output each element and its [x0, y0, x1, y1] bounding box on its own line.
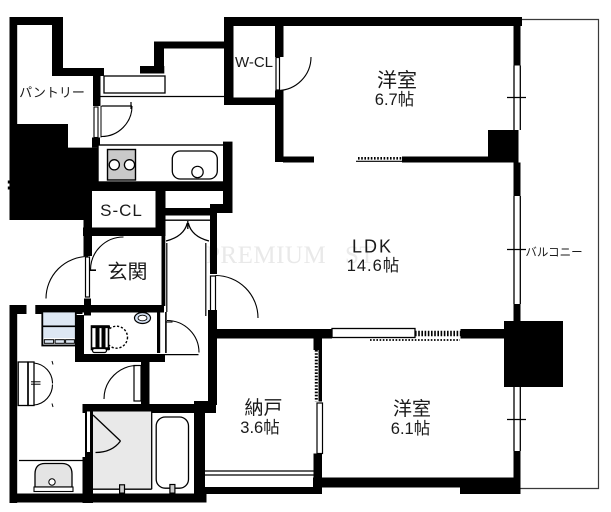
svg-text:パントリー: パントリー [19, 85, 85, 100]
svg-text:6.1帖: 6.1帖 [391, 419, 430, 438]
svg-text:LDK: LDK [352, 237, 393, 257]
svg-text:3.6帖: 3.6帖 [240, 418, 279, 437]
svg-text:W-CL: W-CL [235, 54, 273, 71]
svg-text:6.7帖: 6.7帖 [375, 90, 414, 109]
svg-text:洋室: 洋室 [393, 398, 431, 420]
svg-text:バルコニー: バルコニー [525, 246, 582, 259]
svg-text:14.6帖: 14.6帖 [347, 256, 401, 275]
svg-text:玄関: 玄関 [108, 261, 148, 284]
svg-text:洋室: 洋室 [377, 69, 417, 92]
svg-text:納戸: 納戸 [244, 397, 282, 419]
svg-text:PREMIUM: PREMIUM [206, 242, 326, 269]
svg-text:S-CL: S-CL [100, 201, 143, 220]
